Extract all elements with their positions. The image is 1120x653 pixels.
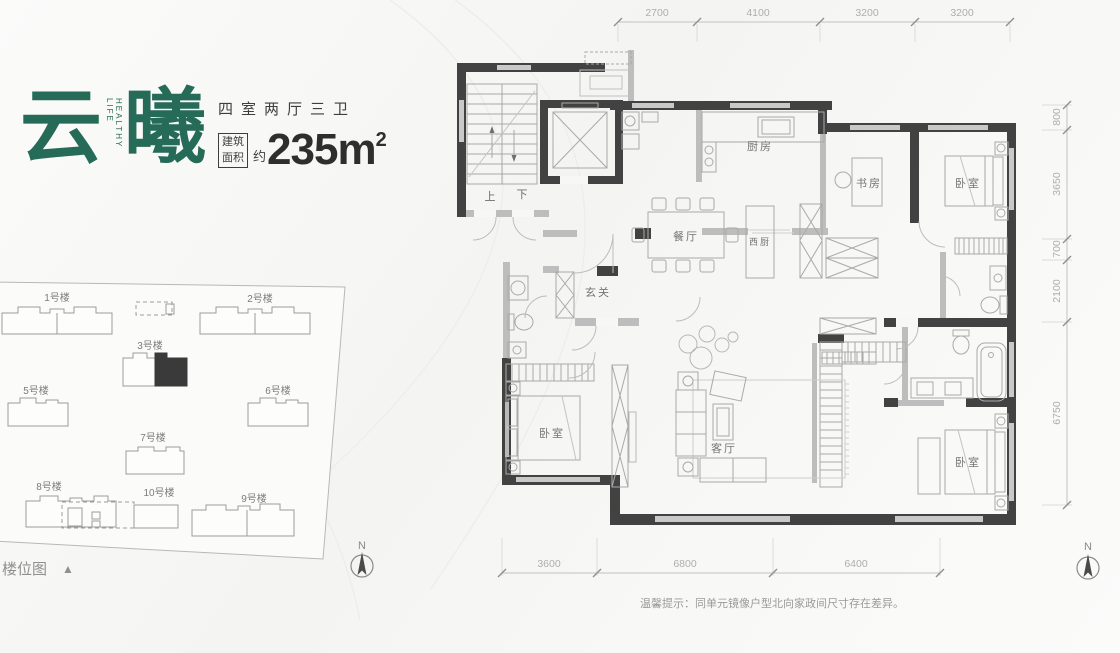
stair-down-label: 下 — [517, 189, 528, 201]
building-label-6: 6号楼 — [265, 384, 291, 397]
room-label-west-kitchen: 西厨 — [749, 237, 771, 247]
room-label-living: 客厅 — [711, 441, 737, 455]
dim-right-5: 6750 — [1051, 401, 1063, 425]
site-north-label: N — [358, 540, 366, 552]
building-label-8: 8号楼 — [36, 480, 62, 493]
dim-right-4: 2100 — [1051, 279, 1063, 303]
floor-plan: 厨房 书房 卧室 餐厅 西厨 玄关 卧室 客厅 卧室 上 下 — [457, 7, 1099, 610]
room-label-bedroom-ne: 卧室 — [955, 176, 981, 190]
dim-bottom-2: 6800 — [673, 558, 697, 570]
room-label-dining: 餐厅 — [673, 229, 699, 243]
site-plan: 1号楼 2号楼 3号楼 5号楼 6号楼 7号楼 8号楼 10号楼 9号楼 楼位图… — [0, 282, 373, 578]
room-label-study: 书房 — [856, 177, 882, 190]
plan-north-label: N — [1084, 541, 1092, 553]
room-label-kitchen: 厨房 — [747, 140, 773, 153]
site-plan-title: 楼位图 — [2, 561, 47, 578]
building-label-7: 7号楼 — [140, 431, 166, 444]
door-arcs — [473, 217, 960, 384]
floorplan-page: 云 HEALTHY LIFE 曦 四室两厅三卫 建筑 面积 约 235m2 — [0, 0, 1120, 653]
plan-north-compass-icon: N — [1077, 541, 1099, 579]
room-label-bedroom-se: 卧室 — [955, 455, 981, 469]
dim-top-3: 3200 — [855, 7, 879, 19]
building-label-3: 3号楼 — [137, 339, 163, 352]
furniture — [467, 52, 1008, 510]
dim-top-4: 3200 — [950, 7, 974, 19]
building-label-1: 1号楼 — [44, 291, 70, 304]
dim-top-2: 4100 — [746, 7, 770, 19]
room-label-bedroom-sw: 卧室 — [539, 426, 565, 440]
building-label-5: 5号楼 — [23, 384, 49, 397]
room-label-foyer: 玄关 — [585, 285, 611, 299]
building-label-9: 9号楼 — [241, 492, 267, 505]
building-label-2: 2号楼 — [247, 292, 273, 305]
drawing-canvas: 1号楼 2号楼 3号楼 5号楼 6号楼 7号楼 8号楼 10号楼 9号楼 楼位图… — [0, 0, 1120, 653]
site-north-compass-icon: N — [351, 540, 373, 577]
building-label-10: 10号楼 — [143, 486, 174, 499]
disclaimer-note: 温馨提示：同单元镜像户型北向家政间尺寸存在差异。 — [640, 596, 904, 610]
dim-top-1: 2700 — [645, 7, 669, 19]
dim-right-1: 800 — [1051, 108, 1063, 126]
door-gaps — [474, 176, 918, 327]
stair-labels: 上 下 — [485, 189, 528, 203]
site-plan-title-marker: ▲ — [62, 562, 74, 576]
building-3-highlight — [155, 353, 187, 386]
dim-right-2: 3650 — [1051, 172, 1063, 196]
walls-dark — [457, 63, 1016, 525]
dim-right-3: 700 — [1051, 240, 1063, 258]
dim-bottom-1: 3600 — [537, 558, 561, 570]
dim-bottom-3: 6400 — [844, 558, 868, 570]
stair-up-label: 上 — [485, 190, 496, 203]
